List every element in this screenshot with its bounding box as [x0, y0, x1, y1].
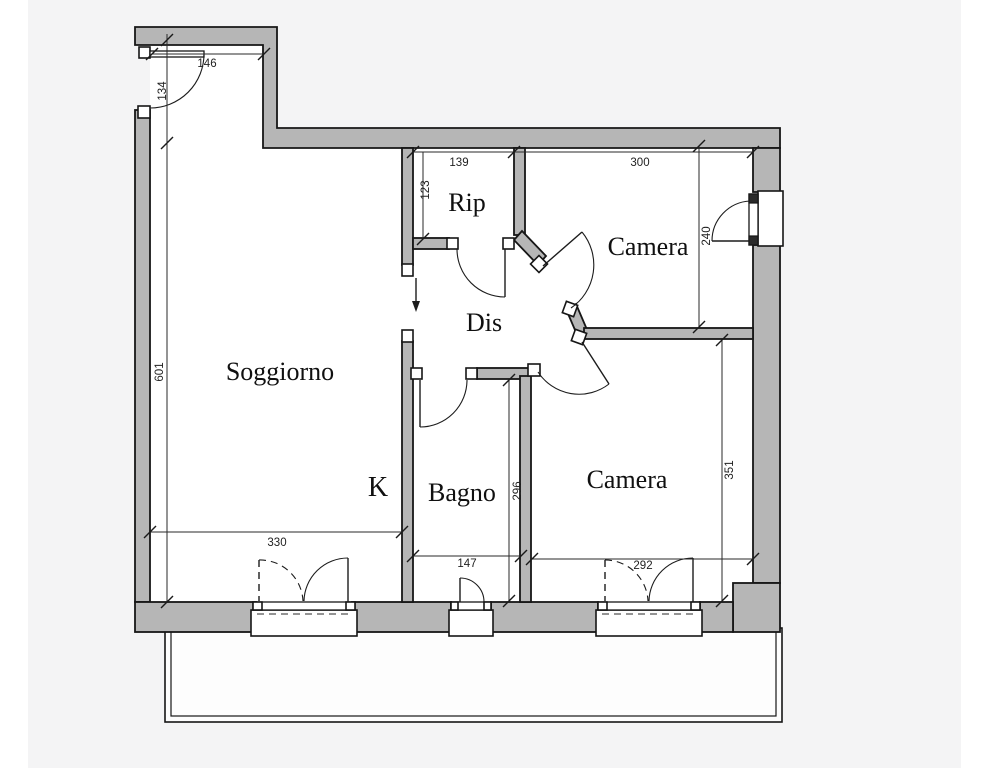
dim-camera-top-width: 300	[630, 157, 649, 169]
window-block-bottom	[749, 236, 758, 245]
dim-rip-depth: 123	[420, 180, 432, 199]
room-label-dis: Dis	[466, 308, 502, 337]
jamb-rip-door-right	[503, 238, 514, 249]
room-label-rip: Rip	[448, 188, 486, 217]
window-outer-box	[758, 191, 783, 246]
jamb-divider-top	[528, 364, 540, 376]
wall-rip-left	[402, 148, 413, 265]
dim-bagno-width: 147	[457, 558, 476, 570]
jamb-bagno-door-left	[411, 368, 422, 379]
jamb-left-wall-top	[138, 106, 150, 118]
dim-soggiorno-length: 601	[154, 362, 166, 381]
dim-camera-bottom-width: 292	[633, 560, 652, 572]
dim-entry-width: 146	[197, 58, 216, 70]
jamb-rip-left-wall-end	[402, 264, 413, 276]
dim-entry-depth: 134	[157, 81, 169, 101]
jamb-bagno-left-wall-top	[402, 330, 413, 342]
wall-bottom-3	[491, 602, 598, 632]
floor-plan-drawing: 146 134 601 330 139 123 300 240 296 147 …	[0, 0, 987, 768]
dim-rip-width: 139	[449, 157, 468, 169]
floor-plan-page: 146 134 601 330 139 123 300 240 296 147 …	[0, 0, 987, 768]
jamb-bagno-top-wall-left	[466, 368, 477, 379]
dim-soggiorno-width: 330	[267, 537, 286, 549]
wall-bottom-1	[135, 602, 256, 632]
dim-bagno-depth: 296	[512, 481, 524, 500]
room-label-kitchen: K	[368, 472, 388, 503]
room-label-bagno: Bagno	[428, 478, 496, 507]
room-label-soggiorno: Soggiorno	[226, 357, 334, 386]
wall-bottom-2	[352, 602, 451, 632]
wall-camera-divider-h	[584, 328, 753, 339]
wall-right-lower	[753, 245, 780, 583]
wall-right-upper	[753, 148, 780, 192]
room-label-camera-bottom: Camera	[587, 465, 668, 494]
wall-corner-pilaster	[733, 583, 780, 632]
wall-left	[135, 110, 150, 602]
wall-rip-right	[514, 148, 525, 235]
room-label-camera-top: Camera	[608, 232, 689, 261]
jamb-rip-door-left	[447, 238, 458, 249]
dim-camera-top-depth: 240	[701, 226, 713, 245]
window-block-top	[749, 194, 758, 203]
wall-bagno-left	[402, 341, 413, 602]
dim-camera-bottom-depth: 351	[724, 460, 736, 479]
balcony	[165, 628, 782, 722]
jamb-entrance-top	[139, 47, 150, 58]
